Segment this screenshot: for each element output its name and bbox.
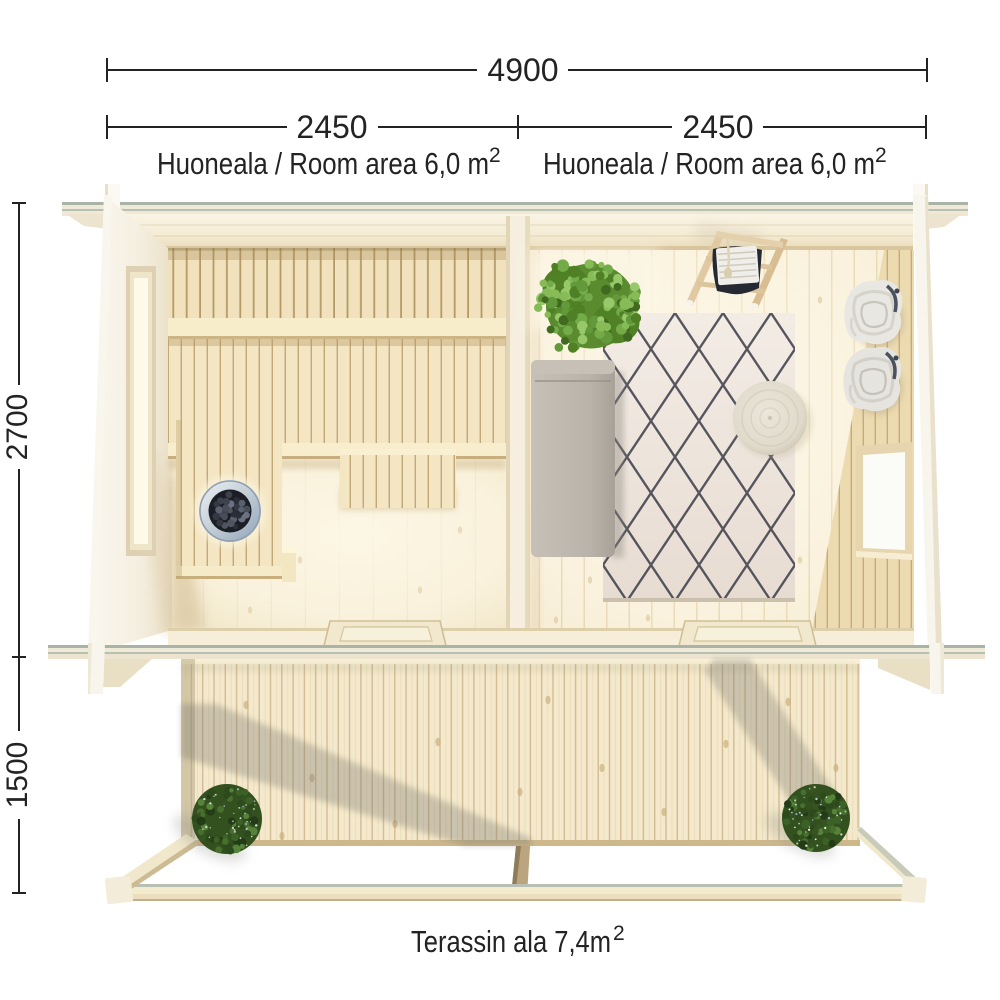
svg-text:Terassin ala 7,4m: Terassin ala 7,4m [411, 924, 611, 959]
svg-text:4900: 4900 [487, 52, 558, 88]
svg-text:2700: 2700 [1, 394, 34, 461]
svg-text:2450: 2450 [296, 109, 367, 145]
svg-text:2: 2 [489, 144, 501, 167]
svg-text:Huoneala / Room area 6,0 m: Huoneala / Room area 6,0 m [157, 146, 489, 181]
svg-text:2: 2 [613, 922, 625, 945]
svg-text:2: 2 [875, 144, 887, 167]
svg-text:2450: 2450 [682, 109, 753, 145]
svg-text:Huoneala / Room area 6,0 m: Huoneala / Room area 6,0 m [543, 146, 875, 181]
svg-text:1500: 1500 [1, 742, 34, 809]
